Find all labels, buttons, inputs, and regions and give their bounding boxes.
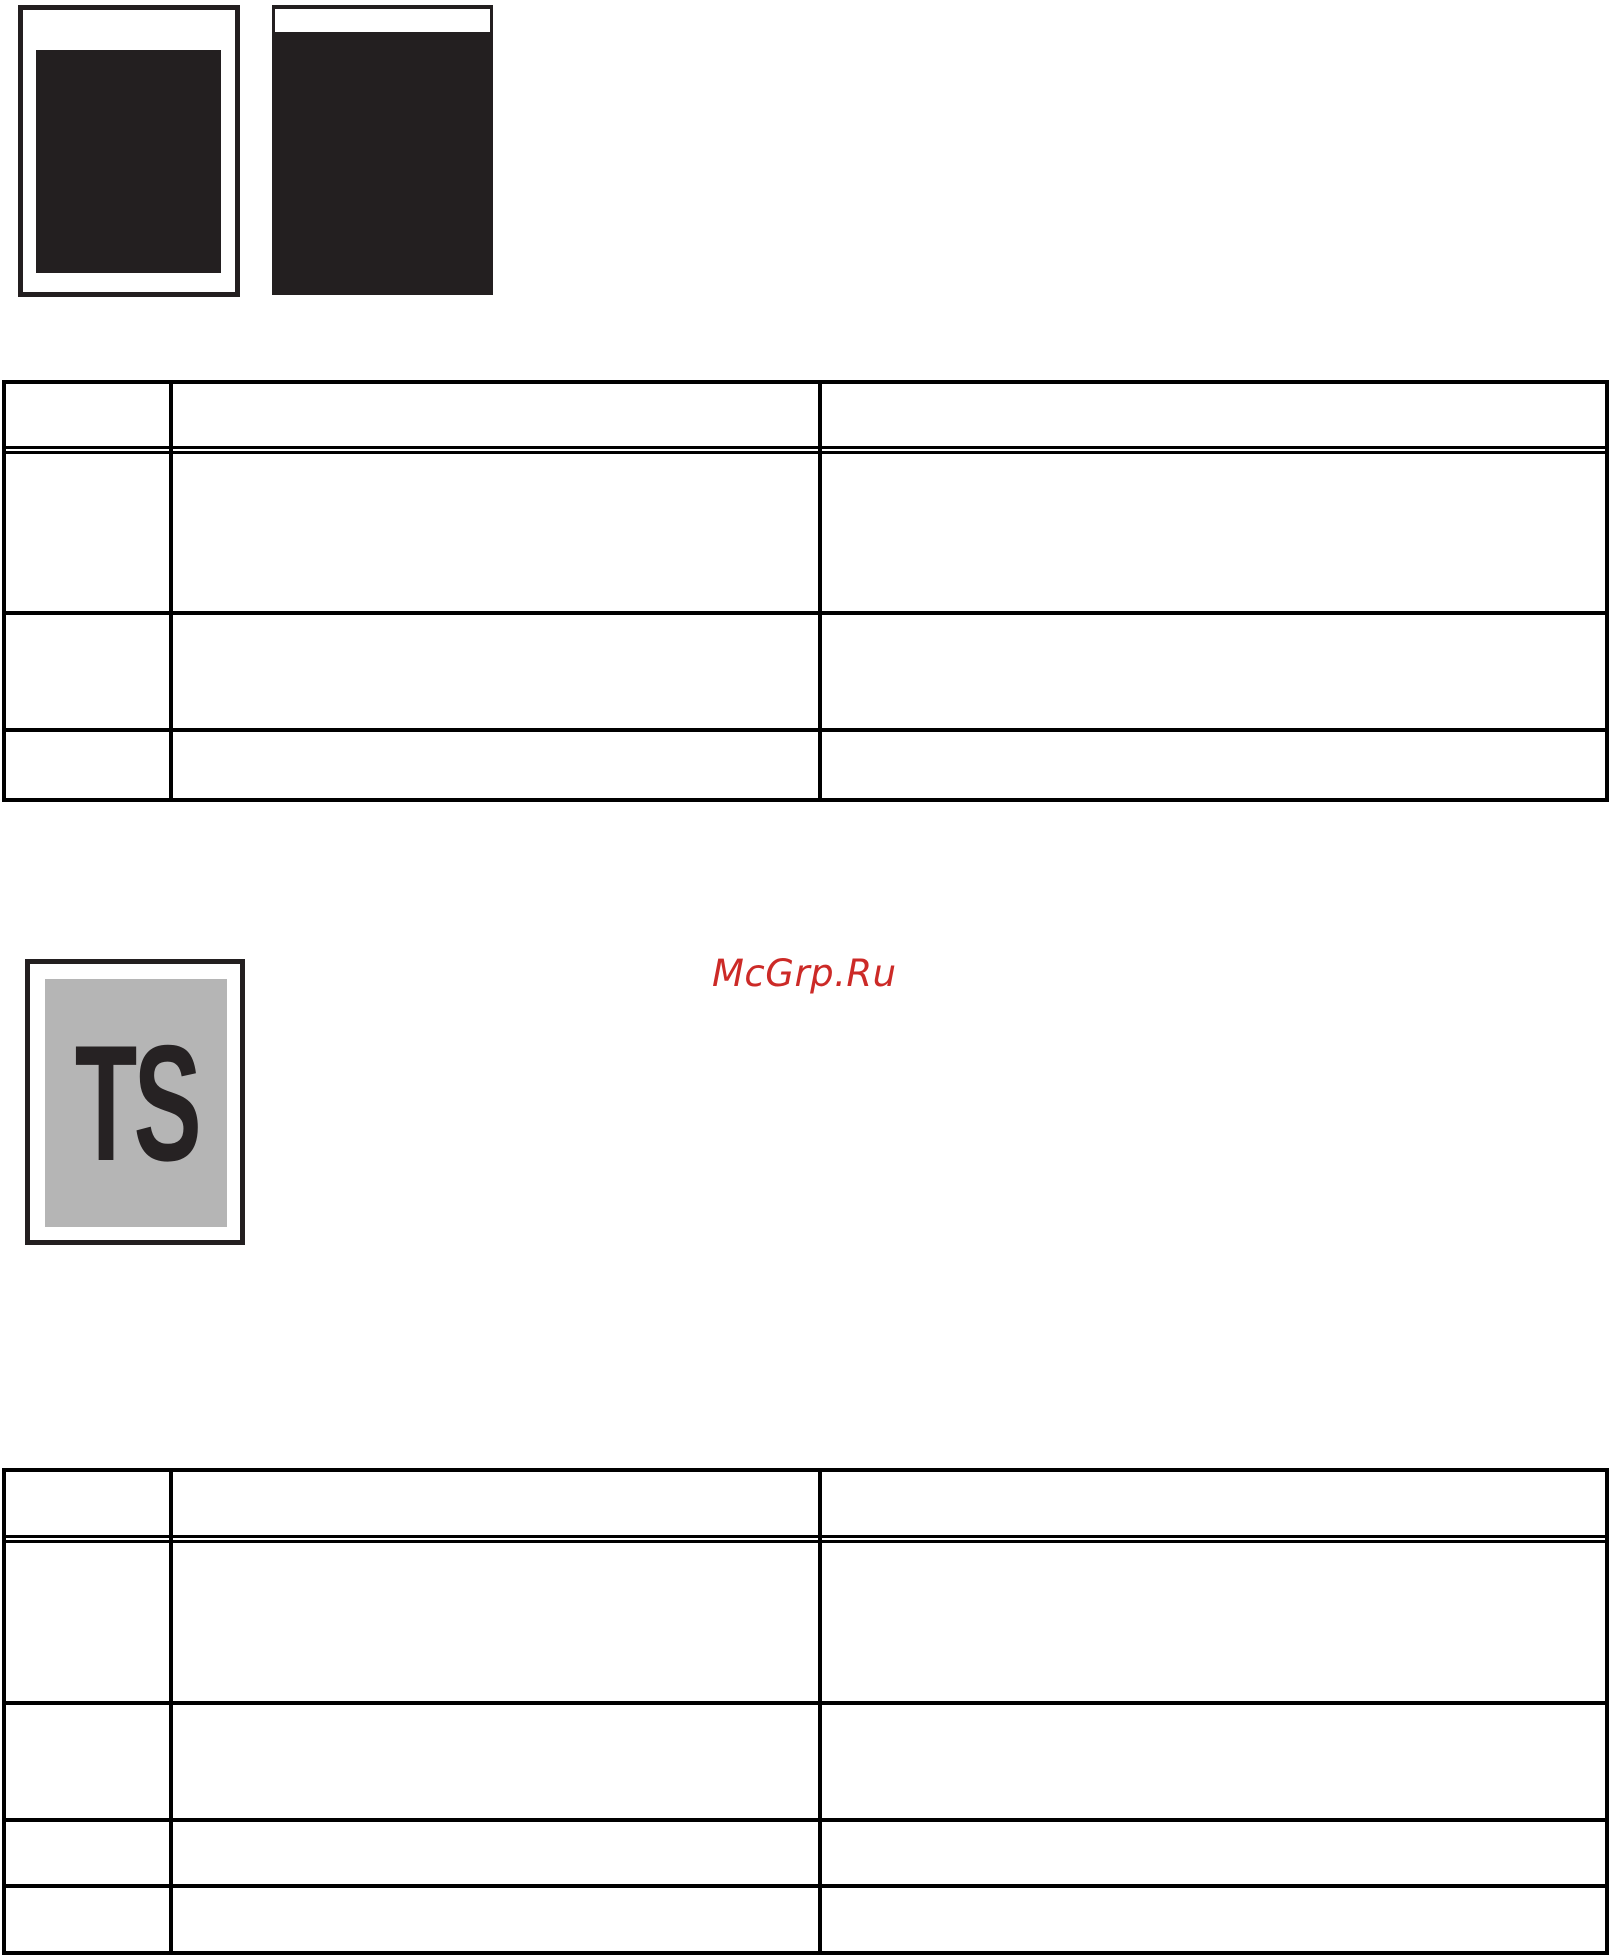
table2-row [6,1890,1605,1951]
table2-cell [6,1824,169,1884]
table1-header-cell [173,384,822,446]
table2-cell [826,1824,1605,1884]
table1-header-rule-top [6,446,1605,449]
troubleshooting-table-2 [2,1468,1609,1955]
table2-cell [6,1890,169,1951]
table2-cell [826,1890,1605,1951]
table2-row [6,1543,1605,1701]
table2-row-divider-2 [6,1818,1605,1822]
table1-header-cell [6,384,169,446]
test-page-thumbnail: TS [25,959,245,1245]
test-page-print-area: TS [45,979,227,1227]
test-page-label: TS [74,1021,197,1186]
troubleshooting-table-1 [2,380,1609,802]
table1-cell [173,454,822,611]
table2-cell [826,1543,1605,1701]
print-sample-all-black-page [272,5,493,295]
table2-cell [173,1705,822,1818]
table2-row [6,1705,1605,1818]
unprinted-top-strip [275,9,490,32]
table1-header-row [6,384,1605,446]
table1-header-cell [826,384,1605,446]
table2-cell [173,1890,822,1951]
table2-header-cell [6,1472,169,1535]
table2-cell [6,1705,169,1818]
table1-row [6,615,1605,728]
table1-cell [6,615,169,728]
table1-cell [6,454,169,611]
table1-cell [826,454,1605,611]
table1-row [6,454,1605,611]
table1-cell [173,732,822,798]
table2-cell [6,1543,169,1701]
table1-row [6,732,1605,798]
table1-cell [826,615,1605,728]
print-sample-black-block-page [18,5,240,297]
black-print-area [36,50,221,273]
manual-page: TS McGrp.Ru [0,0,1612,1955]
mcgrp-watermark: McGrp.Ru [712,954,897,995]
table1-cell [6,732,169,798]
table2-header-row [6,1472,1605,1535]
table2-row [6,1824,1605,1884]
table2-header-cell [826,1472,1605,1535]
table2-header-rule-top [6,1535,1605,1538]
table2-cell [173,1543,822,1701]
table1-cell [173,615,822,728]
table2-row-divider-3 [6,1884,1605,1888]
table2-header-cell [173,1472,822,1535]
table1-cell [826,732,1605,798]
table2-cell [826,1705,1605,1818]
table2-cell [173,1824,822,1884]
